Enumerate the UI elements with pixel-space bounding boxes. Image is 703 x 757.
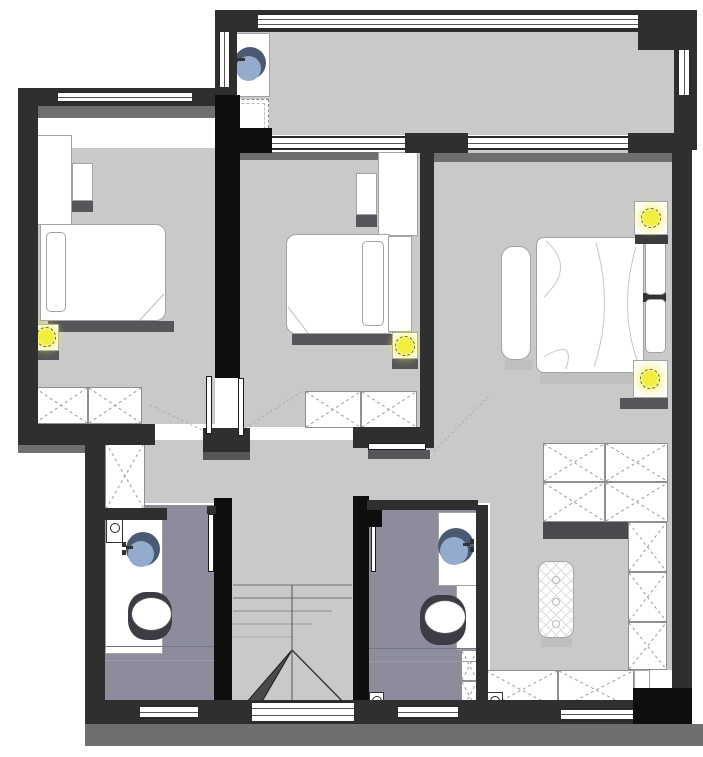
pillow [645, 299, 666, 353]
faucet-icon [470, 539, 474, 544]
nightstand-shadow [620, 398, 668, 409]
rug-shadow [541, 638, 572, 647]
rug-button [552, 576, 560, 584]
shower-divider-line [368, 648, 478, 649]
bathroom-middle-top-wall [367, 500, 478, 510]
bedroom-middle-window [272, 136, 405, 150]
entry-window [252, 701, 354, 723]
lamp-icon [395, 336, 415, 356]
pillow [645, 241, 666, 295]
faucet-icon [237, 58, 245, 61]
shower-divider-line [105, 660, 214, 661]
balcony-floor [230, 30, 676, 135]
bathroom-middle-right-wall [476, 505, 488, 705]
floor-drain-icon [106, 519, 123, 543]
wardrobe-cell [543, 482, 605, 522]
nightstand-shadow [392, 359, 418, 369]
master-entry-door-leaf [368, 443, 426, 450]
shelf [72, 163, 93, 201]
right-exterior-wall [672, 148, 692, 724]
bottom-wall-shadow [368, 450, 430, 459]
faucet-icon [122, 550, 126, 555]
bed-shadow [48, 321, 174, 332]
floor-plan [0, 0, 703, 757]
divider-block-shadow [203, 452, 250, 460]
wardrobe-cell [605, 443, 668, 482]
lamp-icon [641, 208, 661, 228]
drain-circle [110, 523, 120, 533]
wardrobe-cell [543, 443, 605, 482]
cabinet-small [634, 670, 650, 690]
wardrobe-shadow [543, 521, 628, 539]
faucet-icon [463, 543, 470, 546]
closet-cell [628, 572, 667, 622]
bed-shadow [540, 373, 644, 384]
rug-button [552, 598, 560, 606]
hall-closet [105, 442, 145, 510]
shower-divider-line [368, 661, 478, 662]
shelf-shadow [72, 201, 93, 212]
balcony-top-window [258, 13, 638, 30]
shelf-shadow [356, 215, 377, 227]
bathroom-left-window [140, 705, 198, 719]
lamp-icon [640, 369, 660, 389]
bench [501, 246, 531, 360]
bed-shadow [292, 334, 394, 345]
closet-cell [628, 622, 667, 670]
left-exterior-wall [18, 88, 38, 445]
stairwell-left-wall [214, 498, 232, 724]
washing-machine-inner [236, 103, 265, 129]
faucet-icon [126, 546, 133, 549]
sink-bowl [128, 541, 154, 567]
bathroom-middle-window [398, 705, 458, 719]
toilet-bowl [131, 597, 172, 631]
faucet-icon [470, 547, 474, 552]
bathroom-left-door-jamb [207, 506, 216, 514]
dresser-cell [88, 387, 142, 424]
bath-zone-left-wall [85, 424, 105, 724]
closet-cell [628, 522, 667, 572]
bottom-right-corner-block [633, 688, 692, 724]
quilted-rug [538, 561, 574, 638]
inner-wall-mid [405, 133, 468, 153]
bedroom-middle-door-leaf [238, 378, 244, 436]
lamp-icon [36, 327, 56, 347]
shower-divider-line [105, 646, 214, 647]
pillow [46, 232, 66, 312]
nightstand-shadow [635, 235, 668, 244]
bed-fold-line [286, 305, 310, 335]
bedroom-middle-right-wall [420, 150, 434, 430]
shadow-band [18, 445, 89, 453]
bedroom-divider-wall [215, 95, 240, 378]
building-drop-shadow [85, 724, 703, 746]
bathroom-left-top-wall [103, 508, 167, 520]
bathroom-middle-door-jamb [367, 510, 382, 527]
living-window [561, 708, 633, 721]
door-swing-mark [150, 395, 210, 435]
bench-shadow [505, 360, 533, 370]
dresser-cell [305, 391, 361, 428]
dresser-cell [34, 387, 88, 424]
desk [36, 135, 72, 225]
bed-headboard [388, 236, 412, 332]
wardrobe [378, 152, 418, 236]
toilet-bowl [424, 600, 466, 634]
sink-bowl [440, 537, 468, 565]
door-swing-mark [432, 395, 490, 453]
door-swing-mark [243, 390, 303, 430]
stairwell-right-wall [353, 496, 369, 724]
shadow-band [434, 153, 672, 162]
dresser-cell [361, 391, 417, 428]
balcony-right-window [677, 50, 691, 95]
balcony-left-window [218, 32, 231, 87]
wardrobe-cell [605, 482, 668, 522]
bed-fold-line [138, 292, 166, 322]
shelf [356, 173, 377, 215]
master-window [468, 136, 628, 150]
duvet-lines [536, 237, 644, 373]
pillow [362, 241, 384, 326]
bedroom-left-window [58, 91, 192, 103]
bedroom-left-door-leaf [206, 376, 212, 434]
inner-wall-right [628, 133, 674, 153]
rug-button [552, 620, 560, 628]
shadow-band [33, 106, 215, 118]
